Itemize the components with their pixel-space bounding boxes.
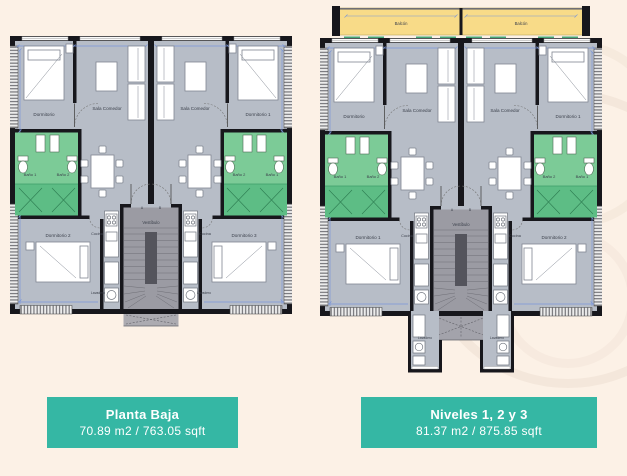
laundry-wing-left: [408, 311, 442, 373]
plan-body: [10, 36, 292, 314]
room-label-balcon-left: Balcón: [395, 21, 408, 26]
room-label-dormitorio-tl: Dormitorio: [343, 114, 365, 119]
caption-niveles: Niveles 1, 2 y 3 81.37 m2 / 875.85 sqft: [361, 397, 597, 448]
room-label-cocina-left: Cocina: [401, 234, 414, 238]
room-label-sala-left: Sala Comedor: [92, 106, 122, 111]
room-label-dormitorio-br: Dormitorio 2: [541, 235, 566, 240]
room-label-lavadero-left: Lavadero: [91, 291, 105, 295]
room-label-cocina-left: Cocina: [91, 232, 104, 236]
page-background: Dormitorio Sala Comedor Sala Comedor Dor…: [0, 0, 627, 476]
room-label-dormitorio-br: Dormitorio 3: [231, 233, 256, 238]
laundry-wing-right: [480, 311, 514, 373]
room-label-dormitorio-tr: Dormitorio 1: [245, 112, 270, 117]
room-label-vestibulo: Vestíbulo: [452, 222, 470, 227]
room-label-dormitorio-tr: Dormitorio 1: [555, 114, 580, 119]
room-label-dormitorio-bl: Dormitorio 2: [45, 233, 70, 238]
room-label-cocina-right: Cocina: [199, 232, 212, 236]
room-label-bano2-right: Baño 2: [543, 174, 556, 179]
room-label-bano2-left: Baño 2: [367, 174, 380, 179]
balcony: Balcón Balcón: [332, 6, 590, 40]
room-label-lavadero-left: Lavadero: [418, 336, 432, 340]
caption-area: 81.37 m2 / 875.85 sqft: [416, 423, 542, 439]
room-label-dormitorio-bl: Dormitorio 1: [355, 235, 380, 240]
stair-projection: [430, 316, 492, 340]
room-label-cocina-right: Cocina: [509, 234, 522, 238]
room-label-bano1-left: Baño 1: [334, 174, 347, 179]
caption-title: Planta Baja: [106, 406, 179, 424]
room-label-vestibulo: Vestíbulo: [142, 220, 160, 225]
room-label-balcon-right: Balcón: [515, 21, 528, 26]
floor-plan-niveles: Balcón Balcón: [320, 4, 602, 378]
plan-body: [320, 38, 602, 316]
room-label-bano2-left: Baño 2: [57, 172, 70, 177]
room-label-bano1-left: Baño 1: [24, 172, 37, 177]
room-label-bano1-right: Baño 1: [576, 174, 589, 179]
caption-planta-baja: Planta Baja 70.89 m2 / 763.05 sqft: [47, 397, 238, 448]
room-label-bano1-right: Baño 1: [266, 172, 279, 177]
room-label-sala-right: Sala Comedor: [490, 108, 520, 113]
room-label-lavadero-right: Lavadero: [197, 291, 211, 295]
caption-title: Niveles 1, 2 y 3: [430, 406, 527, 424]
floor-plan-planta-baja: Dormitorio Sala Comedor Sala Comedor Dor…: [10, 34, 292, 334]
room-label-dormitorio-tl: Dormitorio: [33, 112, 55, 117]
stair-projection: [124, 314, 179, 326]
room-label-sala-right: Sala Comedor: [180, 106, 210, 111]
caption-area: 70.89 m2 / 763.05 sqft: [79, 423, 205, 439]
room-label-lavadero-right: Lavadero: [490, 336, 504, 340]
room-label-bano2-right: Baño 2: [233, 172, 246, 177]
room-label-sala-left: Sala Comedor: [402, 108, 432, 113]
